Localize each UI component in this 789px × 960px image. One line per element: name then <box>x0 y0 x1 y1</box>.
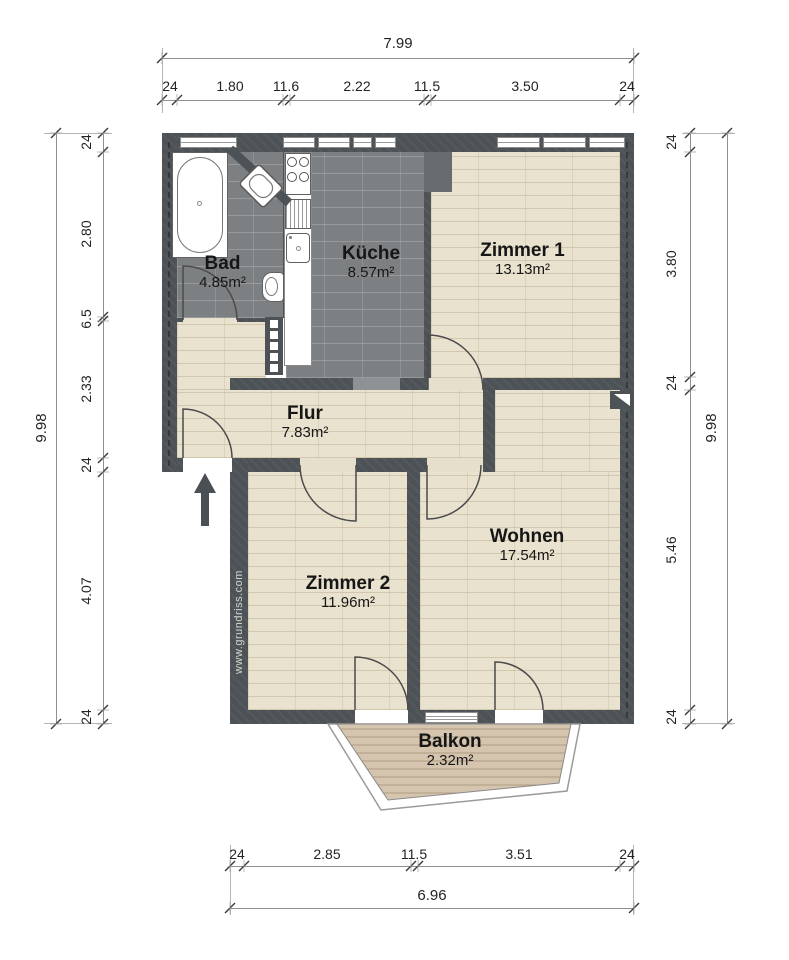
dim-segment-label: 24 <box>78 120 94 164</box>
wall-zimmer1-wohnen <box>483 378 620 390</box>
room-area: 7.83m² <box>250 424 360 442</box>
wall-flur-zimmer2-b <box>356 458 427 472</box>
dim-line-right-total <box>727 133 728 724</box>
sink-icon <box>286 233 310 263</box>
dim-extension <box>682 723 735 724</box>
dim-segment-label: 2.80 <box>78 212 94 256</box>
room-area: 8.57m² <box>316 264 426 282</box>
kueche-doorway-threshold <box>353 378 400 390</box>
dim-segment-label: 2.85 <box>305 846 349 862</box>
dim-segment-label: 1.80 <box>208 78 252 94</box>
kueche-window-icon <box>318 137 350 148</box>
stove-burner <box>287 172 297 182</box>
entrance-arrow-icon <box>194 473 216 528</box>
wall-flur-kueche-b <box>400 378 428 390</box>
dim-segment-label: 24 <box>663 120 679 164</box>
wall-bad-bottom-b <box>237 318 266 322</box>
dim-line-bottom-segments <box>230 866 634 867</box>
room-area: 4.85m² <box>175 274 270 292</box>
room-label-kueche: Küche 8.57m² <box>316 243 426 282</box>
stove-burner <box>287 157 297 167</box>
dim-extension <box>682 133 735 134</box>
radiator-cell <box>270 320 278 328</box>
dim-segment-label: 24 <box>78 443 94 487</box>
wall-bad-bottom-a <box>177 318 183 322</box>
stove-burner <box>299 157 309 167</box>
dim-segment-label: 24 <box>215 846 259 862</box>
room-name: Bad <box>175 253 270 274</box>
room-name: Zimmer 1 <box>455 240 590 261</box>
dim-segment-label: 11.5 <box>405 78 449 94</box>
dim-line-top-total <box>162 58 634 59</box>
dim-line-bottom-total <box>230 908 634 909</box>
dim-segment-label: 3.80 <box>663 242 679 286</box>
watermark-text: www.grundriss.com <box>233 542 247 702</box>
sink-drain <box>296 246 301 251</box>
room-label-flur: Flur 7.83m² <box>250 403 360 442</box>
kueche-window-icon <box>283 137 315 148</box>
dim-line-left-total <box>56 133 57 724</box>
dim-segment-label: 4.07 <box>78 569 94 613</box>
room-area: 11.96m² <box>283 594 413 612</box>
wall-flur-kueche-a <box>230 378 353 390</box>
dim-segment-label: 24 <box>663 361 679 405</box>
bad-window-icon <box>180 137 237 148</box>
dim-total-bottom: 6.96 <box>410 888 454 904</box>
zimmer1-window-icon <box>497 137 540 148</box>
dim-segment-label: 24 <box>663 695 679 739</box>
dim-segment-label: 24 <box>148 78 192 94</box>
zimmer2-balcony-door-opening <box>355 710 408 724</box>
zimmer1-window-icon <box>589 137 625 148</box>
room-name: Zimmer 2 <box>283 573 413 594</box>
wohnen-balcony-door-opening <box>495 710 543 724</box>
room-label-balkon: Balkon 2.32m² <box>385 731 515 770</box>
zimmer1-window-icon <box>543 137 586 148</box>
kueche-window-icon <box>375 137 396 148</box>
dim-segment-label: 2.33 <box>78 367 94 411</box>
room-name: Flur <box>250 403 360 424</box>
dim-line-right-segments <box>690 133 691 724</box>
wohnen-floor <box>420 472 620 710</box>
room-area: 13.13m² <box>455 261 590 279</box>
bathtub-icon <box>172 152 228 258</box>
radiator-cell <box>270 331 278 339</box>
dim-segment-label: 24 <box>78 695 94 739</box>
room-name: Wohnen <box>462 526 592 547</box>
dim-segment-label: 3.51 <box>497 846 541 862</box>
bathtub-drain <box>197 201 202 206</box>
room-label-bad: Bad 4.85m² <box>175 253 270 292</box>
wohnen-floor-upper <box>495 390 620 472</box>
dim-segment-label: 5.46 <box>663 528 679 572</box>
radiator-icon <box>265 317 283 375</box>
floorplan-canvas: Bad 4.85m² Küche 8.57m² Zimmer 1 13.13m²… <box>0 0 789 960</box>
dim-total-top: 7.99 <box>376 36 420 52</box>
radiator-cell <box>270 364 278 372</box>
dim-line-left-segments <box>103 133 104 724</box>
dim-segment-label: 6.5 <box>78 297 94 341</box>
kueche-window-icon <box>353 137 372 148</box>
radiator-cell <box>270 353 278 361</box>
chimney-block <box>424 152 452 192</box>
zimmer1-door-opening <box>428 378 483 390</box>
dim-segment-label: 2.22 <box>335 78 379 94</box>
wall-left-dash-accent <box>168 142 170 466</box>
dim-total-right: 9.98 <box>704 406 720 450</box>
room-area: 17.54m² <box>462 547 592 565</box>
entrance-arrow-head <box>194 473 216 493</box>
wall-flur-wohnen-corner <box>483 458 495 472</box>
room-label-wohnen: Wohnen 17.54m² <box>462 526 592 565</box>
dim-segment-label: 11.5 <box>392 846 436 862</box>
room-area: 2.32m² <box>385 752 515 770</box>
wall-flur-wohnen-vertical <box>483 390 495 458</box>
dim-line-top-segments <box>162 100 634 101</box>
room-label-zimmer2: Zimmer 2 11.96m² <box>283 573 413 612</box>
balcony-window <box>425 712 478 723</box>
dim-total-left: 9.98 <box>34 406 50 450</box>
stove-icon <box>285 153 311 195</box>
sink-faucet <box>289 236 292 239</box>
entrance-opening <box>183 458 232 472</box>
dim-segment-label: 11.6 <box>264 78 308 94</box>
entrance-arrow-stem <box>201 492 209 526</box>
wall-right-dash-accent <box>626 142 628 718</box>
stove-burner <box>299 172 309 182</box>
room-name: Küche <box>316 243 426 264</box>
wohnen-door-opening <box>427 458 483 472</box>
radiator-cell <box>270 342 278 350</box>
room-label-zimmer1: Zimmer 1 13.13m² <box>455 240 590 279</box>
drainboard-icon <box>285 199 311 229</box>
dim-segment-label: 24 <box>605 846 649 862</box>
zimmer2-door-opening <box>300 458 356 472</box>
room-name: Balkon <box>385 731 515 752</box>
dim-segment-label: 24 <box>605 78 649 94</box>
dim-segment-label: 3.50 <box>503 78 547 94</box>
